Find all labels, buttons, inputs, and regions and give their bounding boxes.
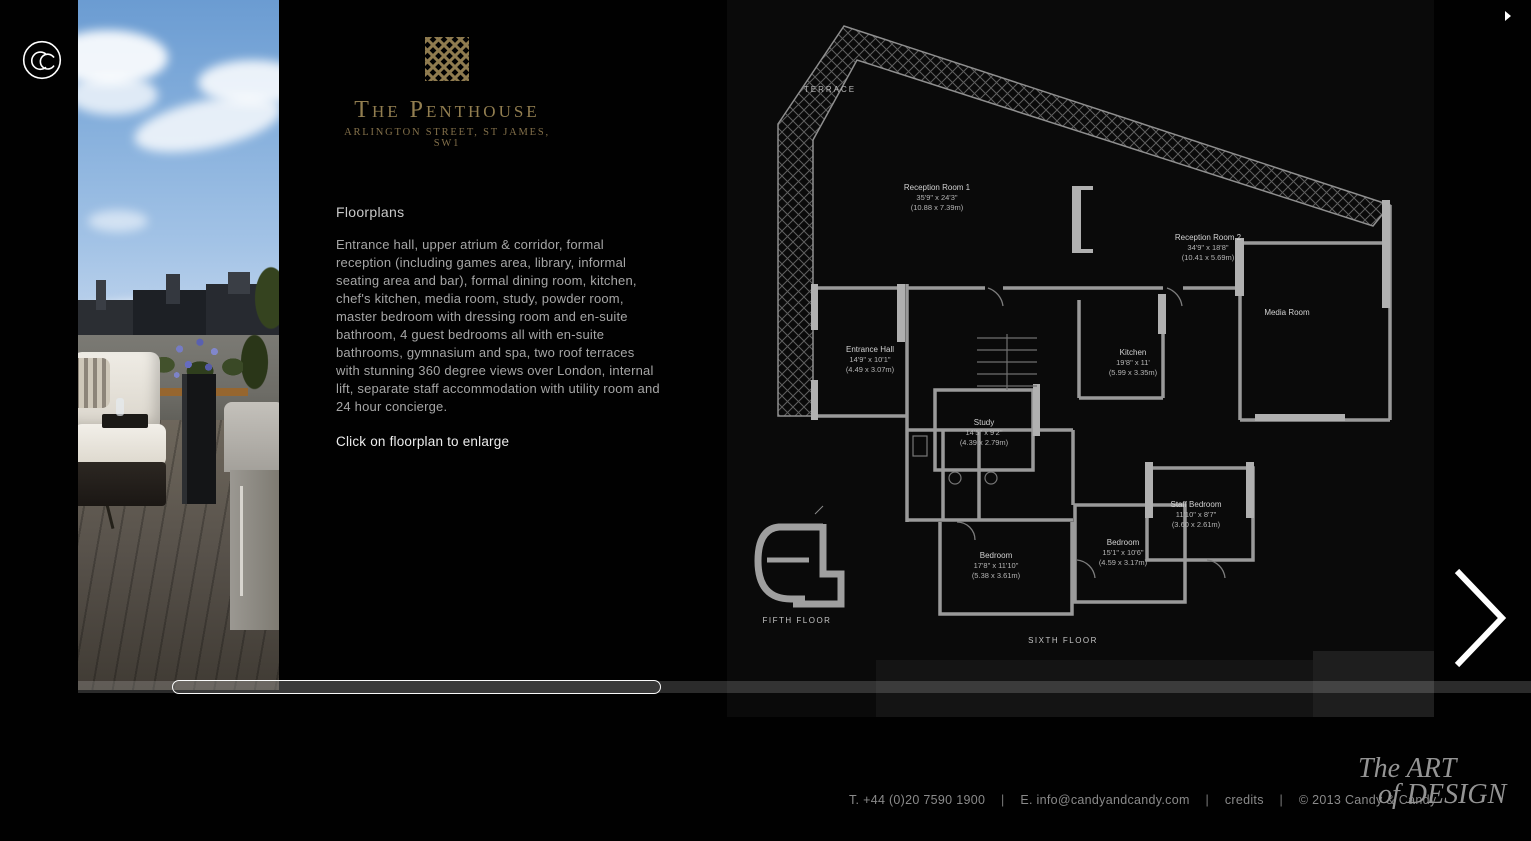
floorplan-image[interactable]: TERRACE Media Room FIFTH FLOOR SIXTH FLO…: [727, 0, 1434, 717]
fifth-floor-label: FIFTH FLOOR: [763, 616, 832, 625]
cc-monogram-icon: [22, 40, 62, 80]
next-button[interactable]: [1452, 568, 1508, 668]
photo-grill: [224, 402, 279, 472]
footer-email-link[interactable]: E. info@candyandcandy.com: [1020, 793, 1189, 807]
svg-text:(4.59 x 3.17m): (4.59 x 3.17m): [1099, 558, 1148, 567]
svg-text:(3.60 x 2.61m): (3.60 x 2.61m): [1172, 520, 1221, 529]
svg-text:19'8" x 11': 19'8" x 11': [1116, 358, 1150, 367]
plan-wall-chunks: [811, 186, 1390, 518]
page: The Penthouse ARLINGTON STREET, ST JAMES…: [0, 0, 1531, 841]
property-subtitle: ARLINGTON STREET, ST JAMES, SW1: [332, 127, 562, 149]
plan-stairs: [977, 334, 1037, 390]
svg-text:(4.49 x 3.07m): (4.49 x 3.07m): [846, 365, 895, 374]
footer-separator: |: [1280, 793, 1284, 807]
footer-separator: |: [1001, 793, 1005, 807]
floorplan-drawing: TERRACE Media Room FIFTH FLOOR SIXTH FLO…: [727, 0, 1434, 717]
section-heading: Floorplans: [336, 204, 661, 220]
property-details-arrow-icon[interactable]: [1505, 11, 1511, 21]
property-title: The Penthouse: [332, 97, 562, 124]
svg-text:15'1" x 10'6": 15'1" x 10'6": [1102, 548, 1143, 557]
photo-plant: [238, 250, 279, 410]
svg-text:(5.99 x 3.35m): (5.99 x 3.35m): [1109, 368, 1158, 377]
photo-sofa-seat: [78, 424, 166, 466]
footer: T. +44 (0)20 7590 1900 | E. info@candyan…: [845, 793, 1440, 807]
media-room-label: Media Room: [1264, 308, 1310, 317]
terrace-label: TERRACE: [804, 85, 856, 94]
lattice-icon: [422, 34, 472, 84]
photo-tray: [102, 414, 148, 428]
svg-text:11'10" x 8'7": 11'10" x 8'7": [1176, 510, 1217, 519]
room-label-entrance-hall: Entrance Hall 14'9" x 10'1" (4.49 x 3.07…: [846, 345, 895, 374]
svg-text:Kitchen: Kitchen: [1120, 348, 1147, 357]
svg-text:Reception Room 2: Reception Room 2: [1175, 233, 1242, 242]
room-label-bedroom-right: Bedroom 15'1" x 10'6" (4.59 x 3.17m): [1099, 538, 1148, 567]
credits-link[interactable]: credits: [1225, 793, 1264, 807]
svg-text:Entrance Hall: Entrance Hall: [846, 345, 894, 354]
svg-text:Staff Bedroom: Staff Bedroom: [1171, 500, 1222, 509]
brand-block: The Penthouse ARLINGTON STREET, ST JAMES…: [332, 34, 562, 149]
room-label-reception-2: Reception Room 2 34'9" x 18'8" (10.41 x …: [1175, 233, 1242, 262]
svg-text:(10.41 x 5.69m): (10.41 x 5.69m): [1182, 253, 1235, 262]
gallery-photo-terrace: [78, 0, 279, 690]
floorplans-text-block: Floorplans Entrance hall, upper atrium &…: [336, 204, 661, 449]
svg-text:35'9" x 24'3": 35'9" x 24'3": [916, 193, 957, 202]
room-label-reception-1: Reception Room 1 35'9" x 24'3" (10.88 x …: [904, 183, 971, 212]
sixth-floor-label: SIXTH FLOOR: [1028, 636, 1098, 645]
svg-text:(10.88 x 7.39m): (10.88 x 7.39m): [911, 203, 964, 212]
svg-text:(5.38 x 3.61m): (5.38 x 3.61m): [972, 571, 1021, 580]
svg-text:34'9" x 18'8": 34'9" x 18'8": [1187, 243, 1228, 252]
svg-text:17'8" x 11'10": 17'8" x 11'10": [974, 561, 1019, 570]
room-label-kitchen: Kitchen 19'8" x 11' (5.99 x 3.35m): [1109, 348, 1158, 377]
photo-pillow: [78, 358, 110, 408]
photo-grill-handle: [240, 486, 243, 596]
art-logo-line2: of DESIGN: [1378, 782, 1506, 808]
svg-text:14'5" x 9'2": 14'5" x 9'2": [966, 428, 1003, 437]
candy-and-candy-logo[interactable]: [22, 40, 62, 80]
svg-text:Bedroom: Bedroom: [980, 551, 1013, 560]
svg-text:Bedroom: Bedroom: [1107, 538, 1140, 547]
chevron-right-icon: [1452, 568, 1508, 668]
enlarge-hint: Click on floorplan to enlarge: [336, 434, 661, 449]
svg-text:(4.39 x 2.79m): (4.39 x 2.79m): [960, 438, 1009, 447]
fifth-floor-plan: [758, 506, 841, 604]
floorplan-description: Entrance hall, upper atrium & corridor, …: [336, 236, 661, 416]
art-of-design-logo: The ART of DESIGN: [1358, 756, 1506, 808]
photo-tall-planter: [182, 374, 216, 504]
svg-text:Study: Study: [974, 418, 994, 427]
svg-text:Reception Room 1: Reception Room 1: [904, 183, 971, 192]
gallery-scrollbar-thumb[interactable]: [172, 680, 661, 694]
photo-cloud: [88, 210, 148, 232]
svg-text:14'9" x 10'1": 14'9" x 10'1": [849, 355, 890, 364]
photo-decanter: [116, 398, 124, 416]
room-label-staff-bedroom: Staff Bedroom 11'10" x 8'7" (3.60 x 2.61…: [1171, 500, 1222, 529]
room-label-bedroom-left: Bedroom 17'8" x 11'10" (5.38 x 3.61m): [972, 551, 1021, 580]
footer-separator: |: [1205, 793, 1209, 807]
photo-sofa-base: [78, 462, 166, 506]
footer-phone: T. +44 (0)20 7590 1900: [849, 793, 985, 807]
photo-grill-body: [230, 470, 279, 630]
room-label-study: Study 14'5" x 9'2" (4.39 x 2.79m): [960, 418, 1009, 447]
